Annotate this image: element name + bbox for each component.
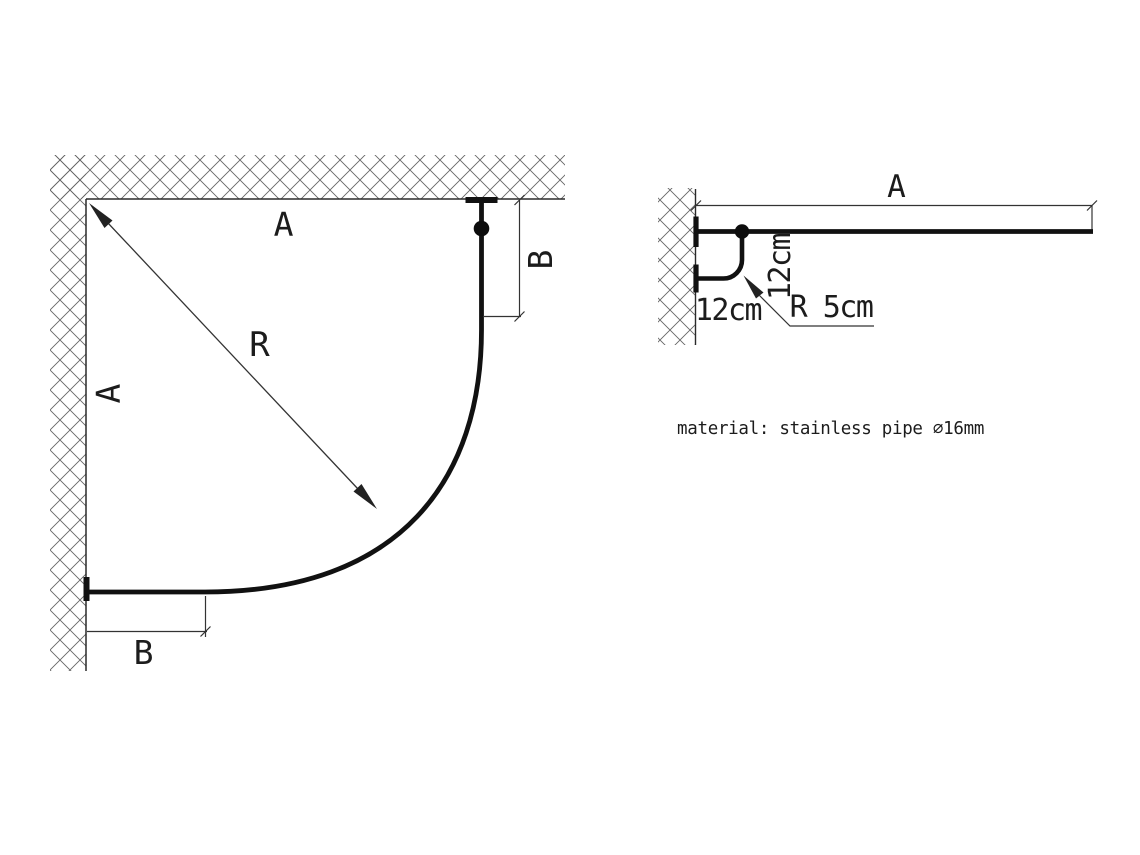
corner-rod-drawing: A A R B B xyxy=(0,0,1140,855)
side-label-12cm-horizontal: 12cm xyxy=(695,293,762,328)
side-view: A 12cm 12cm R 5cm material: stainless pi… xyxy=(658,169,1097,439)
plan-label-b-right: B xyxy=(521,250,560,269)
plan-label-r: R xyxy=(249,325,270,365)
plan-top-wall-hatch xyxy=(50,155,565,199)
side-support-bracket xyxy=(697,234,742,279)
rod-pivot-dot xyxy=(474,221,490,237)
side-label-a: A xyxy=(887,169,906,205)
technical-drawing-page: A A R B B xyxy=(0,0,1140,855)
side-pivot-dot xyxy=(735,224,749,238)
plan-view: A A R B B xyxy=(50,155,565,672)
plan-label-a-left: A xyxy=(89,383,128,403)
plan-label-b-bottom: B xyxy=(134,633,153,672)
curtain-rod xyxy=(88,201,482,592)
radius-dimension-line xyxy=(92,206,374,506)
dimension-b-bottom xyxy=(87,596,211,637)
side-wall-hatch xyxy=(658,188,695,345)
dimension-b-right xyxy=(483,195,525,322)
side-label-r5cm: R 5cm xyxy=(790,290,873,325)
plan-left-wall-hatch xyxy=(50,155,86,671)
material-note: material: stainless pipe ⌀16mm xyxy=(677,419,984,439)
plan-label-a-top: A xyxy=(274,205,294,244)
